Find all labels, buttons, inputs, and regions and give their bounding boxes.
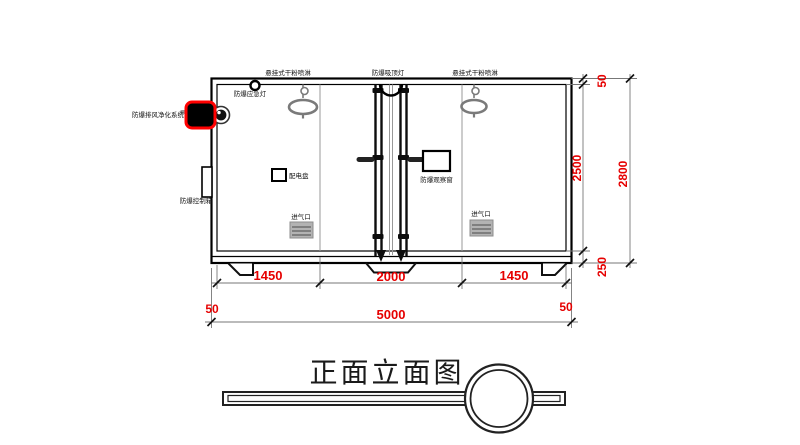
exhaust-purifier-icon (182, 102, 230, 128)
sprinkler-left-label: 悬挂式干粉喷淋 (265, 68, 311, 77)
drawing-title: 正面立面图 (309, 357, 464, 389)
ceiling-light-label: 防爆吸顶灯 (372, 68, 405, 77)
dim-width-center-bay: 2000 (377, 269, 406, 284)
power-panel-label: 配电盘 (289, 171, 309, 180)
sprinkler-right-label: 悬挂式干粉喷淋 (452, 68, 498, 77)
control-box-icon (202, 167, 212, 197)
power-panel-icon (272, 169, 286, 181)
elevation-drawing: 悬挂式干粉喷淋 防爆吸顶灯 悬挂式干粉喷淋 防爆应急灯 防爆排风净化系统 防爆控… (0, 0, 800, 445)
air-inlet-right-icon (470, 220, 493, 236)
control-box-label: 防爆控制箱 (180, 196, 213, 205)
dim-wall-right: 50 (559, 300, 573, 314)
dim-width-right-bay: 1450 (500, 268, 529, 283)
dim-wall-left: 50 (205, 302, 219, 316)
exhaust-purifier-label: 防爆排风净化系统 (132, 110, 185, 119)
observation-window-icon (423, 151, 450, 171)
dim-roof-thickness: 50 (595, 74, 609, 88)
emergency-light-label: 防爆应急灯 (234, 89, 267, 98)
emergency-light-icon (251, 81, 260, 90)
elevation-drawing-page: 悬挂式干粉喷淋 防爆吸顶灯 悬挂式干粉喷淋 防爆应急灯 防爆排风净化系统 防爆控… (0, 0, 800, 445)
dim-base-height: 250 (595, 257, 609, 277)
air-inlet-right-label: 进气口 (471, 209, 491, 218)
dim-width-left-bay: 1450 (254, 268, 283, 283)
observation-window-label: 防爆观察窗 (420, 175, 453, 184)
container-outline (212, 79, 572, 264)
dim-width-total: 5000 (377, 307, 406, 322)
dim-interior-height: 2500 (570, 154, 584, 181)
dim-height-total: 2800 (616, 160, 630, 187)
air-inlet-left-label: 进气口 (291, 212, 311, 221)
air-inlet-left-icon (290, 222, 313, 238)
